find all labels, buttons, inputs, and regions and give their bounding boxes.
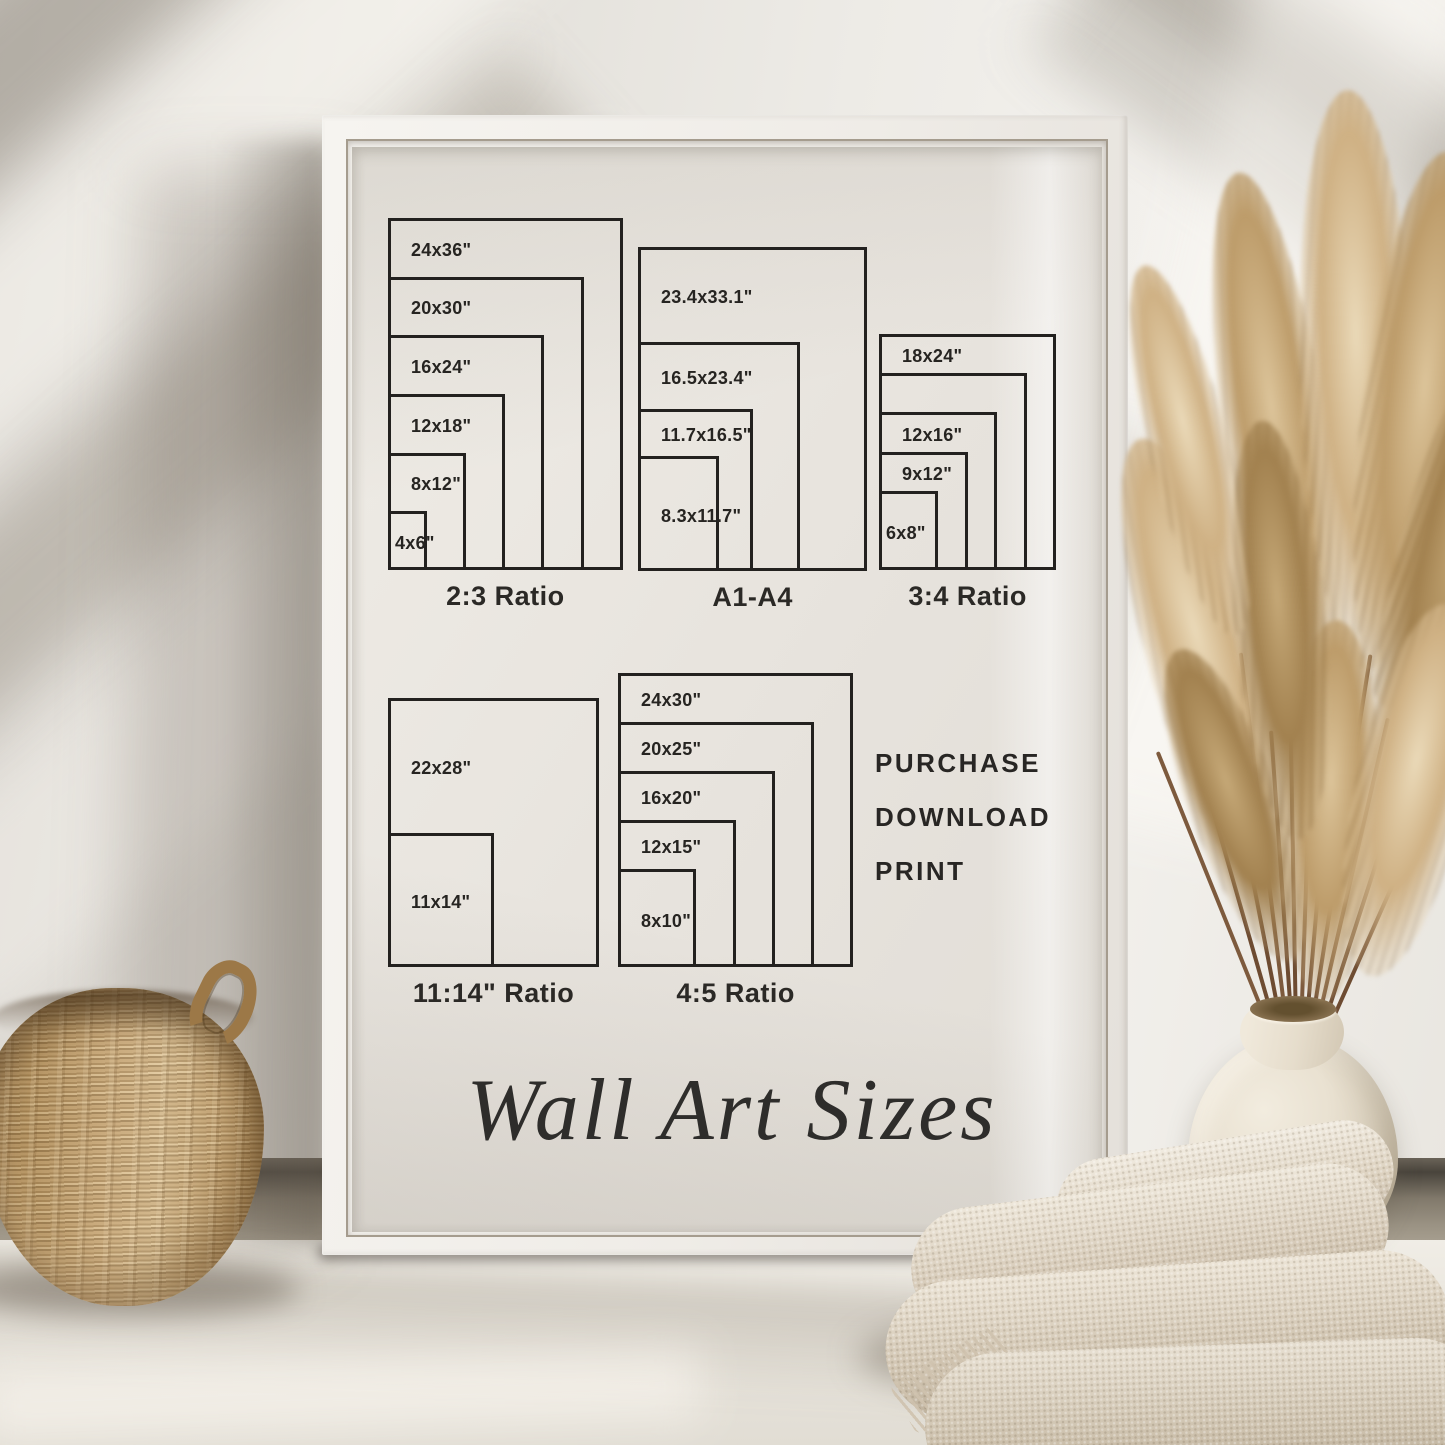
size-label: 9x12" <box>882 455 965 494</box>
size-label: 20x30" <box>391 280 581 339</box>
size-rectangle: 6x8" <box>879 491 938 570</box>
size-label: 20x25" <box>621 725 811 774</box>
size-label: 24x30" <box>621 676 850 725</box>
size-group-a1-a4: 8.3x11.7"11.7x16.5"16.5x23.4"23.4x33.1" … <box>638 247 867 571</box>
size-label: 11.7x16.5" <box>641 412 750 459</box>
group-title: A1-A4 <box>712 582 793 613</box>
size-label: 8x12" <box>391 456 463 515</box>
size-label: 12x18" <box>391 397 502 456</box>
size-group-4-5-ratio: 8x10"12x15"16x20"20x25"24x30" 4:5 Ratio <box>618 673 853 967</box>
purchase-download-print: PURCHASE DOWNLOAD PRINT <box>875 748 1051 910</box>
size-label: 11x14" <box>391 836 491 970</box>
size-label: 8x10" <box>621 872 693 970</box>
size-group-2-3-ratio: 4x6"8x12"12x18"16x24"20x30"24x36" 2:3 Ra… <box>388 218 623 570</box>
blanket-fold <box>923 1335 1445 1445</box>
size-rectangle: 4x6" <box>388 511 427 570</box>
size-label: 6x8" <box>882 494 935 573</box>
size-label: 8.3x11.7" <box>641 459 716 574</box>
group-title: 4:5 Ratio <box>676 978 795 1009</box>
size-group-3-4-ratio: 6x8"9x12"12x16"18x24" 3:4 Ratio <box>879 334 1056 570</box>
size-guide-poster: 4x6"8x12"12x18"16x24"20x30"24x36" 2:3 Ra… <box>352 147 1102 1232</box>
size-label: 18x24" <box>882 337 1053 376</box>
size-label: 12x16" <box>882 415 994 454</box>
size-rectangle: 8.3x11.7" <box>638 456 719 571</box>
group-title: 3:4 Ratio <box>908 581 1027 612</box>
size-group-11-14-ratio: 11x14"22x28" 11:14" Ratio <box>388 698 599 967</box>
group-title: 2:3 Ratio <box>446 581 565 612</box>
size-label: 16x20" <box>621 774 772 823</box>
size-rectangle: 11x14" <box>388 833 494 967</box>
group-title: 11:14" Ratio <box>413 978 574 1009</box>
size-rectangle: 8x10" <box>618 869 696 967</box>
action-line: PURCHASE <box>875 748 1051 802</box>
size-label: 16x24" <box>391 338 541 397</box>
size-label: 12x15" <box>621 823 733 872</box>
blanket <box>915 1145 1445 1445</box>
action-line: DOWNLOAD <box>875 802 1051 856</box>
size-label: 22x28" <box>391 701 596 835</box>
size-label: 16.5x23.4" <box>641 345 797 413</box>
poster-frame: 4x6"8x12"12x18"16x24"20x30"24x36" 2:3 Ra… <box>322 115 1128 1255</box>
action-line: PRINT <box>875 856 1051 910</box>
size-label: 24x36" <box>391 221 620 280</box>
room-scene: 4x6"8x12"12x18"16x24"20x30"24x36" 2:3 Ra… <box>0 0 1445 1445</box>
size-label: 4x6" <box>391 514 424 573</box>
size-label: 23.4x33.1" <box>641 250 864 345</box>
